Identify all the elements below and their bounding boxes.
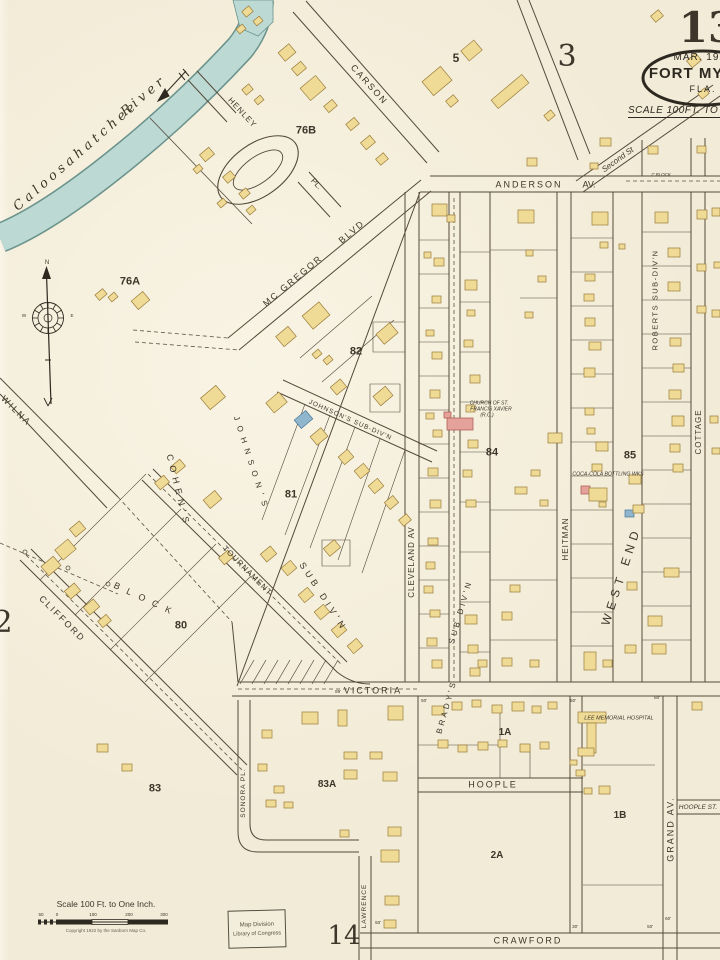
street-mcgregor-blvd: BLVD	[337, 219, 366, 246]
block-5: 5	[453, 52, 460, 64]
dim-label: 50'	[647, 925, 653, 930]
scale-tick: 200	[125, 913, 133, 918]
river-name-1: Caloosahatchee	[11, 99, 141, 214]
dim-label: 60'	[665, 917, 671, 922]
street-heitman: HEITMAN	[562, 518, 570, 561]
block-word: BLOCK	[112, 581, 180, 619]
street-lawrence: LAWRENCE	[362, 884, 369, 929]
street-crawford: CRAWFORD	[494, 937, 563, 946]
adjacent-sheet-3: 3	[557, 42, 576, 72]
dim-label: 50'	[570, 699, 576, 704]
street-victoria: VICTORIA	[344, 687, 402, 696]
block-83: 83	[149, 784, 161, 795]
street-second: Second St	[601, 146, 636, 174]
street-henley-pl: PL.	[309, 177, 323, 191]
street-hoople-st: HOOPLE ST.	[679, 805, 717, 812]
street-sonora: SONORA PL.	[241, 768, 248, 817]
subdivision-cohens-2: SUB DIV'N	[297, 561, 348, 633]
street-mcgregor: MC GREGOR	[262, 254, 325, 309]
street-cleveland: CLEVELAND AV	[408, 526, 416, 597]
subdivision-cohens-1: COHEN'S	[165, 453, 192, 528]
dim-label: 50'	[421, 699, 427, 704]
block-2a: 2A	[491, 851, 504, 861]
poi-church-3: (R.C.)	[480, 414, 493, 419]
subdivision-johnsons: JOHNSON'S SUB-DIV'N	[307, 400, 392, 443]
compass-label-e: E	[70, 314, 73, 319]
scale-tick: 100	[89, 913, 97, 918]
compass-label-n: N	[45, 260, 49, 266]
compass-label-w: W	[22, 314, 26, 319]
street-clifford: CLIFFORD	[37, 594, 86, 643]
street-grand: GRAND AV.	[667, 796, 676, 862]
poi-coca-cola: COCA-COLA BOTTLING WKS	[572, 472, 643, 477]
map-canvas: MAR. 1922 FORT MYERS FLA. SCALE 100FT. T…	[0, 0, 720, 960]
block-84: 84	[486, 448, 498, 459]
scale-tick: 50	[38, 913, 43, 918]
label-layer: 1332145CaloosahatcheeRiverCARSONHENLEYPL…	[0, 0, 720, 960]
scale-tick: 300	[160, 913, 168, 918]
block-82: 82	[350, 347, 362, 358]
adjacent-sheet-14: 14	[327, 923, 360, 949]
block-1a: 1A	[499, 728, 512, 738]
subdivision-west-end: WEST END	[599, 525, 642, 627]
street-carson: CARSON	[349, 63, 389, 107]
dim-label: 50'	[375, 921, 381, 926]
subdivision-roberts: ROBERTS SUB-DIV'N	[651, 250, 659, 351]
block-81: 81	[285, 490, 297, 501]
adjacent-sheet-2: 2	[0, 608, 13, 638]
block-80: 80	[175, 621, 187, 632]
block-85: 85	[624, 451, 636, 462]
street-tournament: TOURNAMENT	[221, 545, 274, 598]
block-1b: 1B	[614, 811, 627, 821]
sheet-number: 13	[679, 7, 720, 49]
dim-label: 30'	[572, 925, 578, 930]
scale-tick: 0	[56, 913, 59, 918]
dim-label: 89'	[335, 690, 341, 695]
river-name-2: River	[119, 73, 170, 118]
measure-note: 2' BLOCK	[651, 173, 671, 178]
street-anderson: ANDERSON	[495, 181, 562, 190]
block-76b: 76B	[296, 126, 316, 137]
subdivision-bradys-2: SUB DIV'N	[448, 579, 474, 645]
block-76a: 76A	[120, 277, 140, 288]
dim-label: 60'	[654, 696, 660, 701]
block-83a: 83A	[318, 780, 336, 790]
street-hoople: HOOPLE	[468, 781, 518, 790]
poi-hospital: LEE MEMORIAL HOSPITAL	[584, 716, 653, 722]
street-henley: HENLEY	[226, 96, 258, 129]
street-cottage: COTTAGE	[695, 409, 703, 454]
subdivision-bradys-1: BRADY'S	[436, 679, 459, 734]
street-anderson-av: AV.	[582, 181, 595, 190]
subdivision-johnsons-2: JOHNSON'S	[232, 415, 271, 513]
street-wilna: WILNA	[0, 394, 33, 428]
